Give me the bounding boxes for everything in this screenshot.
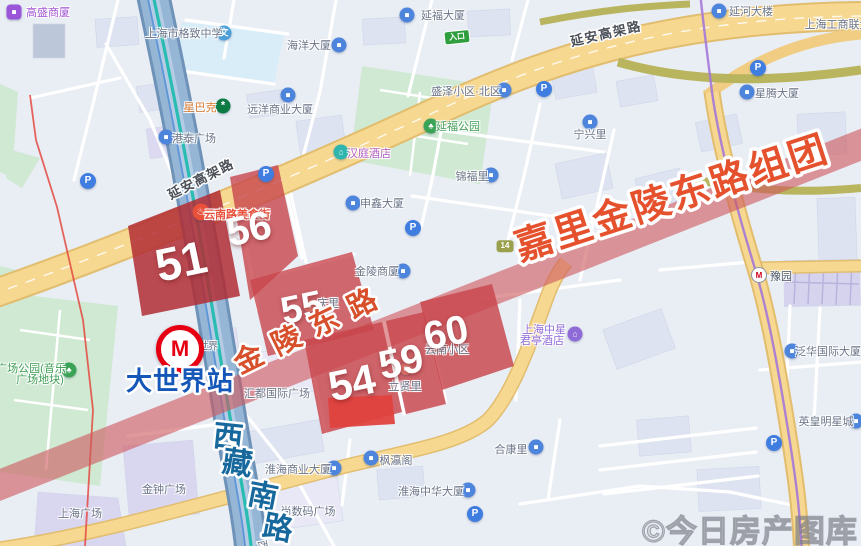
parking-icon[interactable]: P [536, 81, 552, 97]
shopping-mall-icon[interactable]: ■ [7, 5, 22, 20]
poi-yinghuang-star-city[interactable]: 英皇明星城 [799, 413, 854, 429]
cluster-title-overlay: 嘉里金陵东路组团 [510, 127, 835, 269]
parcel-54-number: 54 [325, 358, 379, 409]
watermark: ©今日房产图库 [642, 506, 858, 546]
road-label-xizang-south-small: 西藏南路 [255, 539, 277, 546]
arterial-roads [0, 0, 861, 546]
parking-icon[interactable]: P [405, 220, 421, 236]
poi-jinfuli[interactable]: 锦福里 [456, 168, 489, 184]
building-icon[interactable]: ■ [364, 451, 379, 466]
route-number-badge: 14 [497, 240, 514, 252]
poi-xingteng-tower[interactable]: 星腾大厦 [755, 85, 799, 101]
minor-streets [30, 0, 861, 546]
metro-yuyuan-icon[interactable]: M [751, 267, 767, 283]
building-icon[interactable]: ■ [346, 196, 361, 211]
shanghai-metro-dashijie-icon[interactable]: M [156, 325, 204, 373]
hotel-icon[interactable]: ⌂ [568, 327, 583, 342]
yuyuan-market-complex [784, 259, 861, 306]
building-icon[interactable]: ■ [712, 4, 727, 19]
poi-zhongxing-hotel-line2[interactable]: 君亭酒店 [520, 332, 564, 348]
poi-shenxin-tower[interactable]: 申鑫大厦 [360, 195, 404, 211]
poi-gaosheng-mall[interactable]: 高盛商厦 [26, 4, 70, 20]
road-label-xizang-south-char2: 藏 [220, 445, 254, 482]
map-canvas[interactable]: ■ 文 ■ ■ * ■ ■ ■ ♣ ⌂ ■ ■ ■ ■ ♨ ■ ■ ■ ■ ⌂ … [0, 0, 861, 546]
poi-yuyuan-station-label[interactable]: 豫园 [770, 268, 792, 284]
road-label-yanan-elevated-west: 延安高架路 [164, 156, 236, 203]
poi-square-park-line2[interactable]: 广场地块) [16, 371, 64, 387]
poi-hanting-hotel[interactable]: 汉庭酒店 [347, 145, 391, 161]
green-areas [0, 22, 494, 486]
road-label-xizang-south-char1: 西 [211, 420, 244, 456]
poi-gezhi-school[interactable]: 上海市格致中学 [146, 25, 223, 41]
poi-shang-digital-plaza[interactable]: 尚数码广场 [281, 503, 336, 519]
poi-hekangli[interactable]: 合康里 [495, 441, 528, 457]
parcel-56-number: 56 [223, 205, 275, 253]
poi-yuanyang-commercial-tower[interactable]: 远洋商业大厦 [247, 101, 313, 117]
building-icon[interactable]: ■ [400, 8, 415, 23]
map-base-layer [0, 0, 861, 546]
parcel-59-number: 59 [375, 338, 427, 386]
building-icon[interactable]: ■ [529, 440, 544, 455]
district-boundary-line [30, 95, 93, 546]
poi-fengying-pavilion[interactable]: 枫瀛阁 [380, 452, 413, 468]
building-icon[interactable]: ■ [740, 85, 755, 100]
entrance-badge: 入口 [443, 29, 470, 45]
poi-fanhua-international-tower[interactable]: 泛华国际大厦 [795, 343, 861, 359]
parking-icon[interactable]: P [750, 60, 766, 76]
poi-jinling-commercial-tower[interactable]: 金陵商厦 [355, 263, 399, 279]
parcel-60-number: 60 [420, 309, 472, 357]
poi-huaihai-zhonghua-tower[interactable]: 淮海中华大厦 [398, 483, 464, 499]
poi-yanfu-park[interactable]: 延福公园 [436, 118, 480, 134]
parking-icon[interactable]: P [258, 166, 274, 182]
poi-gangtai-plaza[interactable]: 港泰广场 [172, 130, 216, 146]
zhonghua-road [712, 92, 802, 546]
parcel-51-number: 51 [151, 233, 211, 289]
poi-huaihai-commercial-tower[interactable]: 淮海商业大厦 [265, 461, 331, 477]
yanan-elevated-road [0, 16, 861, 295]
road-label-xizang-south-char3: 南 [245, 478, 281, 516]
starbucks-icon[interactable]: * [216, 99, 231, 114]
parking-icon[interactable]: P [80, 173, 96, 189]
poi-shanghai-square[interactable]: 上海广场 [58, 505, 102, 521]
road-label-yanan-elevated-east: 延安高架路 [568, 18, 643, 49]
building-icon[interactable]: ■ [332, 38, 347, 53]
poi-haiyang-tower[interactable]: 海洋大厦 [287, 37, 331, 53]
poi-huidu-international-plaza[interactable]: 汇都国际广场 [244, 385, 310, 401]
poi-shengze-residential-north[interactable]: 盛泽小区·北区 [431, 83, 501, 99]
poi-starbucks[interactable]: 星巴克 [184, 99, 217, 115]
map-label-layer: 延安高架路 延安高架路 金陵东路 西 藏 南 路 西藏南路 大世界站 嘉里金陵东… [0, 0, 861, 546]
parcel-55-number: 55 [277, 285, 326, 331]
poi-ningxingli[interactable]: 宁兴里 [574, 126, 607, 142]
parking-icon[interactable]: P [467, 506, 483, 522]
poi-jinzhong-plaza[interactable]: 金钟广场 [142, 481, 186, 497]
parking-icon[interactable]: P [766, 435, 782, 451]
poi-shanghai-federation-building[interactable]: 上海工商联大厦 [805, 16, 861, 32]
poi-yanhe-building[interactable]: 延河大楼 [729, 3, 773, 19]
poi-yanfu-tower[interactable]: 延福大厦 [421, 7, 465, 23]
